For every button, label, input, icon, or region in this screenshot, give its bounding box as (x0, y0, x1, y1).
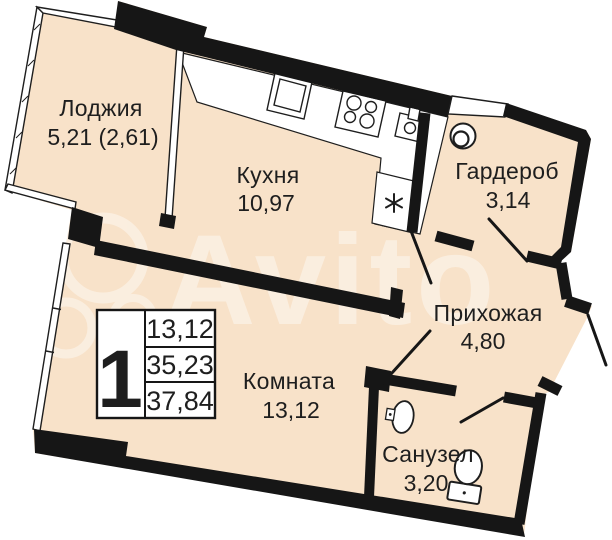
legend-area-without-loggia: 35,23 (146, 350, 214, 380)
washing-machine-icon (451, 124, 476, 149)
legend-total-area: 37,84 (146, 386, 214, 416)
room-area-loggia: 5,21 (2,61) (47, 124, 158, 150)
wardrobe-window-strip (448, 96, 508, 117)
room-area-kitchen: 10,97 (237, 190, 295, 216)
wall-entrance-upper-1 (561, 263, 567, 299)
room-label-kitchen: Кухня (236, 162, 299, 188)
room-label-bathroom: Санузел (382, 441, 474, 467)
room-area-hallway: 4,80 (461, 328, 506, 354)
legend-living-area: 13,12 (146, 314, 214, 344)
room-area-bathroom: 3,20 (404, 470, 449, 496)
room-area-wardrobe: 3,14 (486, 187, 531, 213)
legend-rooms-count: 1 (97, 334, 143, 425)
wall-wardrobe-bottom-right (527, 256, 561, 264)
room-label-room: Комната (243, 368, 335, 394)
room-area-room: 13,12 (262, 397, 320, 423)
room-label-wardrobe: Гардероб (455, 158, 559, 184)
floor-plan-svg: Avito (0, 0, 612, 540)
wall-bathroom-left (369, 387, 374, 497)
floor-plan-canvas: Avito (0, 0, 612, 540)
wall-bathroom-top-right (504, 397, 537, 403)
legend-box: 1 13,12 35,23 37,84 (97, 310, 215, 425)
room-label-hallway: Прихожая (434, 300, 543, 326)
wall-entrance-upper-2 (566, 301, 590, 309)
entrance-door-swing (588, 315, 606, 365)
room-label-loggia: Лоджия (59, 95, 142, 121)
